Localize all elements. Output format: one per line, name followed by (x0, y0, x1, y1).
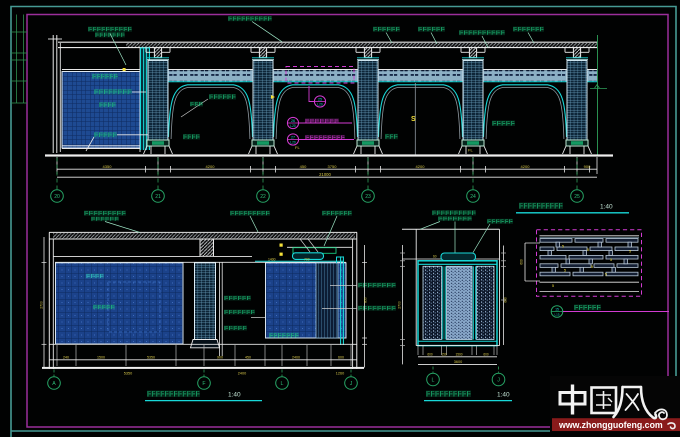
svg-text:L: L (281, 381, 284, 387)
svg-text:5350: 5350 (124, 371, 132, 375)
svg-text:5: 5 (552, 284, 554, 288)
svg-text:4350: 4350 (103, 164, 113, 169)
svg-text:2700: 2700 (40, 301, 44, 309)
svg-text:3750: 3750 (328, 164, 338, 169)
svg-text:FL: FL (468, 148, 473, 153)
svg-text:L: L (432, 378, 435, 384)
svg-text:5: 5 (562, 245, 564, 249)
svg-text:22: 22 (260, 194, 266, 200)
svg-text:F: F (202, 381, 205, 387)
svg-text:21000: 21000 (319, 172, 331, 177)
svg-text:J: J (497, 378, 500, 384)
svg-text:5: 5 (610, 258, 612, 262)
svg-text:5: 5 (591, 265, 593, 269)
svg-text:150: 150 (441, 352, 447, 356)
svg-text:1500: 1500 (97, 355, 105, 359)
svg-text:5: 5 (587, 248, 589, 252)
svg-text:23: 23 (365, 194, 371, 200)
svg-text:600: 600 (520, 259, 524, 265)
svg-text:J: J (350, 381, 353, 387)
svg-text:1:40: 1:40 (497, 392, 510, 399)
svg-text:S: S (411, 116, 416, 123)
svg-text:240: 240 (63, 355, 69, 359)
svg-text:1400: 1400 (268, 257, 276, 261)
svg-text:FL: FL (295, 145, 300, 150)
svg-text:1500: 1500 (455, 352, 462, 356)
svg-text:24: 24 (470, 194, 476, 200)
svg-text:15: 15 (555, 307, 559, 311)
svg-text:20: 20 (54, 194, 60, 200)
svg-text:900: 900 (217, 355, 223, 359)
svg-text:600: 600 (483, 352, 489, 356)
svg-text:2400: 2400 (238, 371, 246, 375)
svg-text:4200: 4200 (206, 164, 216, 169)
svg-text:L15: L15 (554, 313, 559, 317)
svg-text:3600: 3600 (454, 360, 462, 364)
svg-text:4200: 4200 (416, 164, 426, 169)
svg-text:450: 450 (245, 355, 251, 359)
svg-text:600: 600 (427, 352, 433, 356)
svg-text:25: 25 (318, 97, 322, 101)
svg-text:850: 850 (364, 297, 368, 303)
svg-text:26: 26 (291, 119, 295, 123)
svg-text:450: 450 (300, 164, 307, 169)
svg-text:1:40: 1:40 (228, 392, 241, 399)
svg-text:25: 25 (574, 194, 580, 200)
svg-text:60: 60 (433, 255, 437, 259)
svg-text:21: 21 (155, 194, 161, 200)
svg-text:5: 5 (564, 269, 566, 273)
svg-text:1260: 1260 (336, 371, 344, 375)
svg-text:2700: 2700 (398, 301, 402, 309)
svg-text:5350: 5350 (147, 355, 155, 359)
svg-text:1:40: 1:40 (600, 204, 613, 211)
svg-text:5: 5 (629, 250, 631, 254)
svg-text:2400: 2400 (292, 355, 300, 359)
svg-text:L20: L20 (317, 103, 323, 107)
svg-text:600: 600 (338, 355, 344, 359)
svg-text:700: 700 (304, 257, 310, 261)
svg-text:www.zhongguofeng.com: www.zhongguofeng.com (558, 420, 663, 430)
svg-text:L20: L20 (290, 141, 296, 145)
svg-text:4200: 4200 (521, 164, 531, 169)
svg-text:27: 27 (291, 135, 295, 139)
svg-text:900: 900 (584, 164, 591, 169)
svg-text:600: 600 (504, 297, 508, 303)
svg-text:L20: L20 (290, 124, 296, 128)
svg-text:5: 5 (605, 273, 607, 277)
svg-text:A: A (52, 381, 56, 387)
